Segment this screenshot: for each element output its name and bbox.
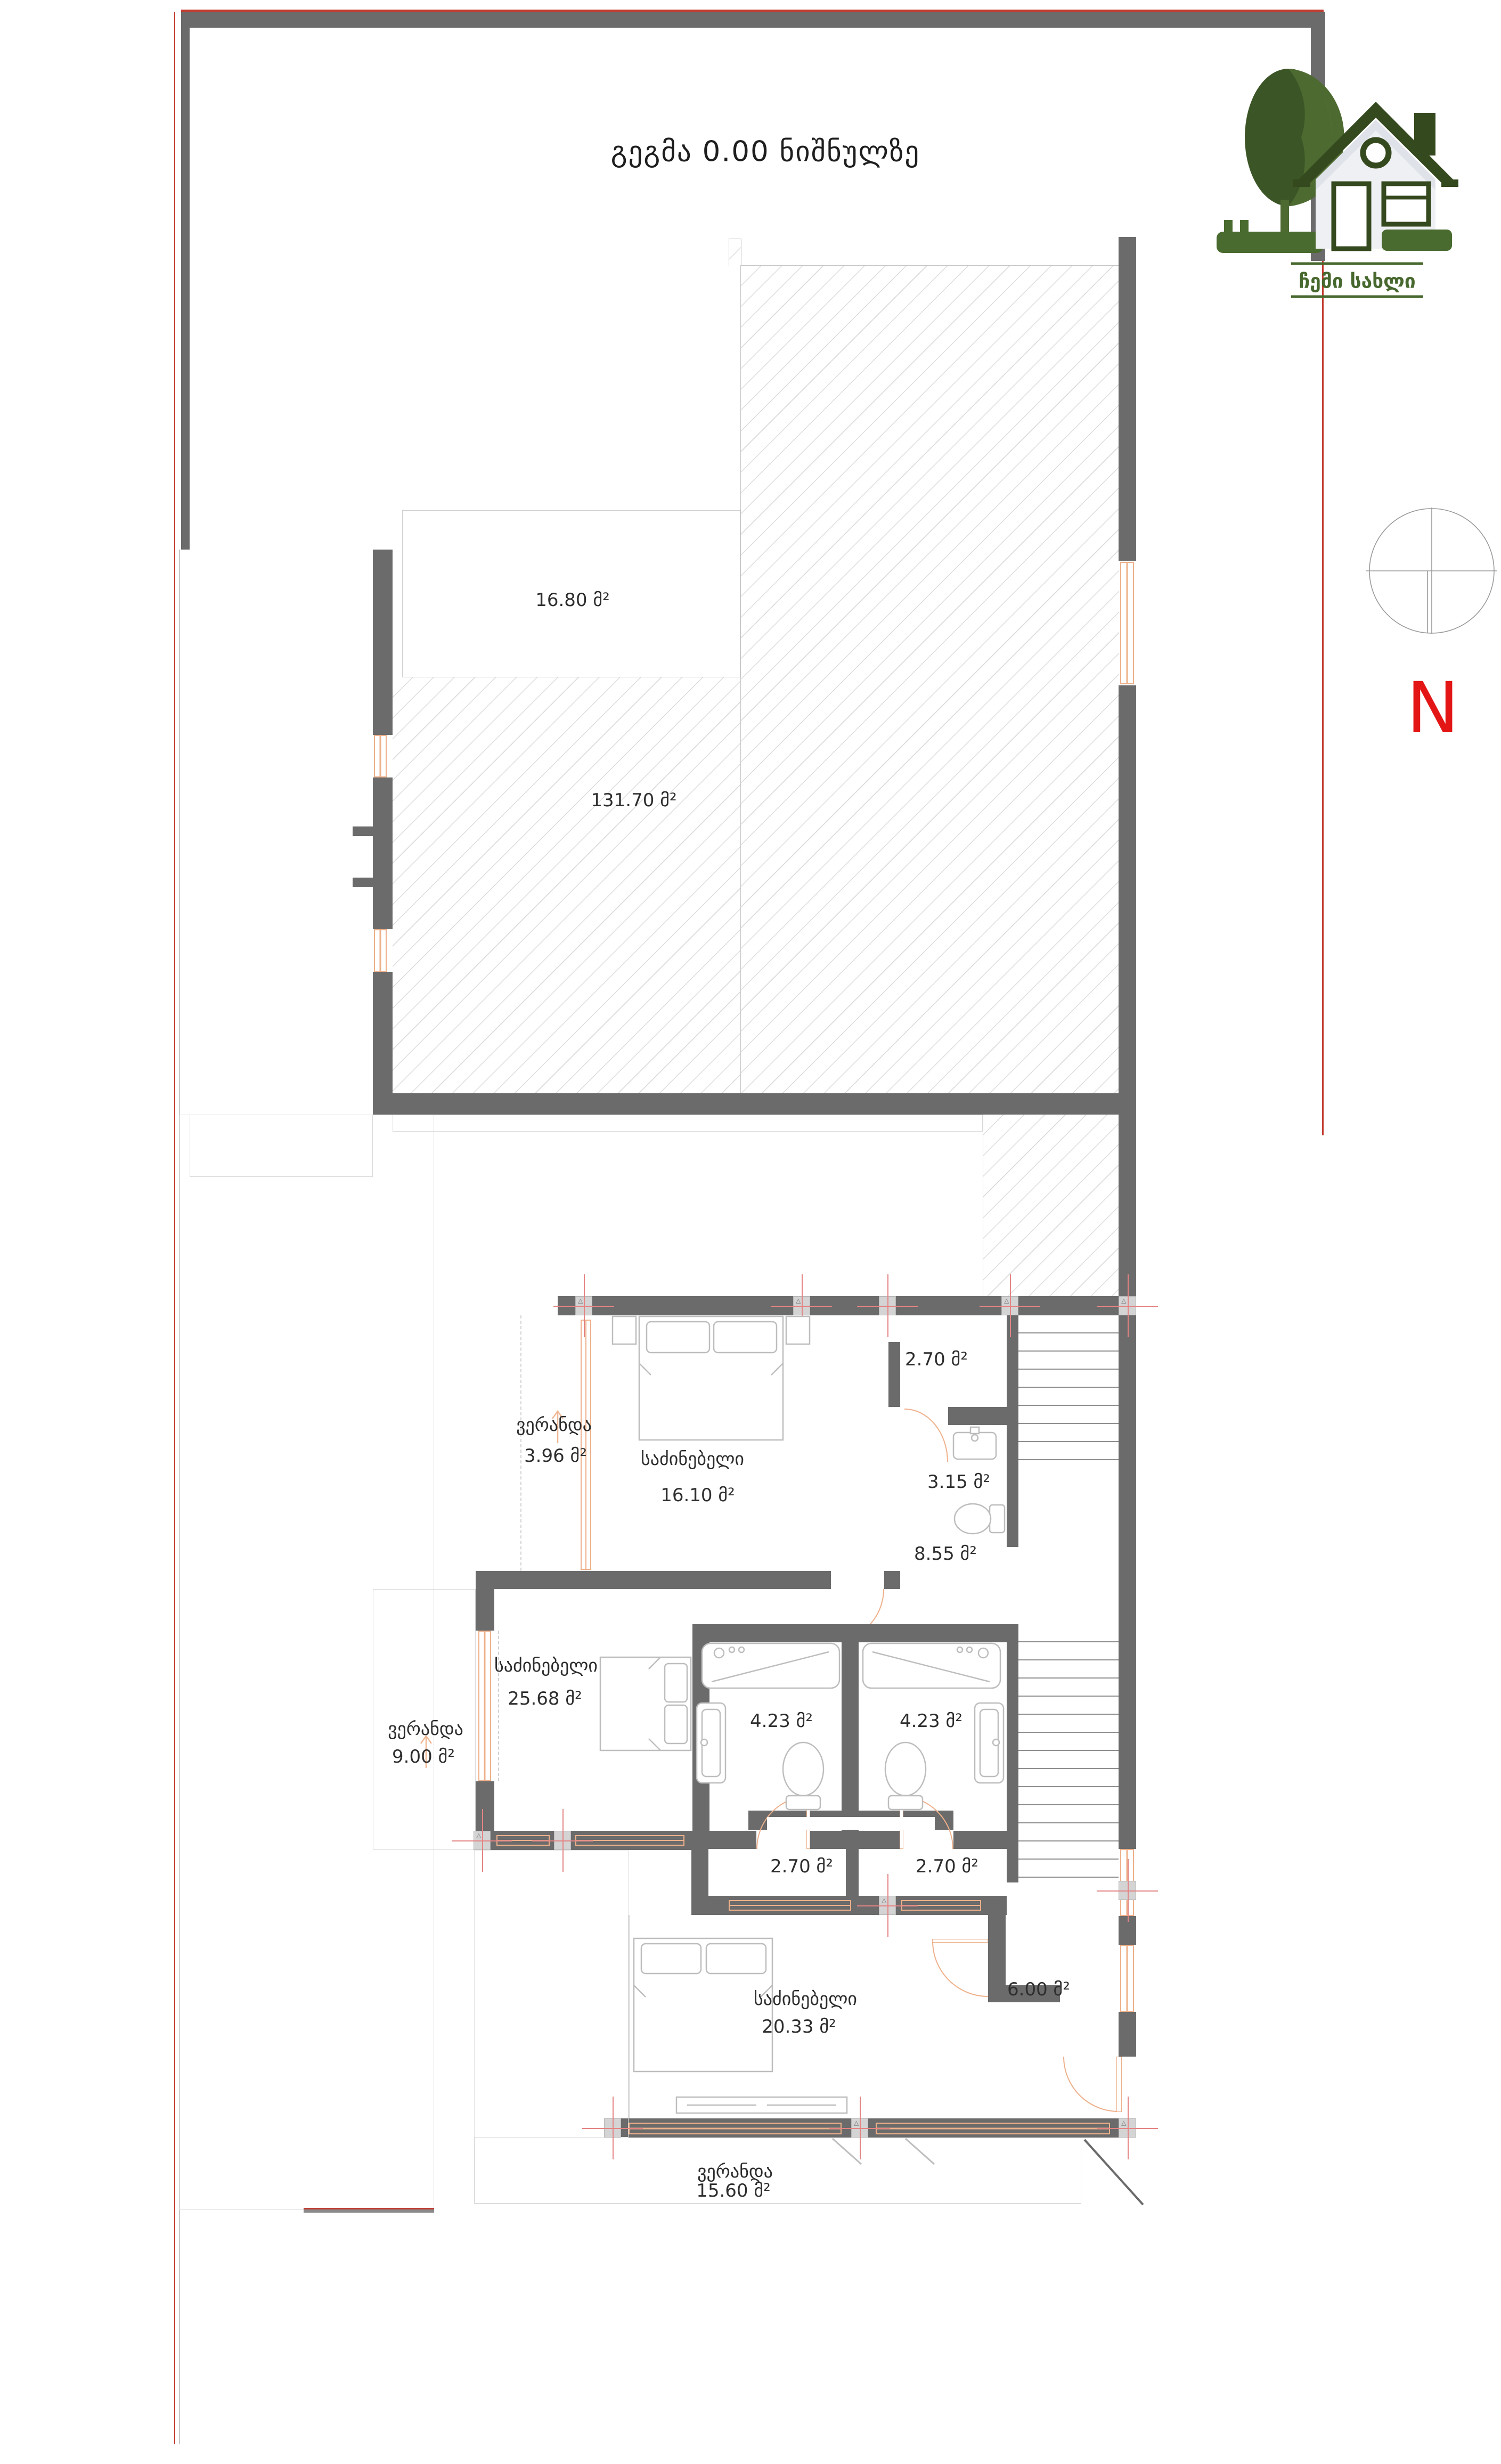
- north-label: N: [1407, 667, 1459, 749]
- hall-upper-area: 8.55 მ²: [914, 1543, 977, 1565]
- compass-icon: [1366, 507, 1497, 634]
- veranda-upper-name: ვერანდა: [516, 1414, 592, 1436]
- toilet-left: [783, 1742, 823, 1810]
- veranda-left-name: ვერანდა: [388, 1718, 463, 1740]
- veranda-bottom-name: ვერანდა: [697, 2161, 773, 2182]
- drawing-overlay: [0, 0, 1501, 2464]
- closet-right-area: 2.70 მ²: [916, 1856, 978, 1877]
- area-terrace: 131.70 მ²: [591, 790, 676, 811]
- sink-left: [697, 1703, 725, 1783]
- ramp-lines: [1084, 2140, 1143, 2205]
- floor-plan-canvas: ▵ ▵ ▵ ▵ ▵ ▵ ▵ ▵: [0, 0, 1501, 2464]
- logo-brand-text: ჩემი სახლი: [1299, 270, 1415, 293]
- bedroom-upper-area: 16.10 მ²: [660, 1485, 735, 1506]
- closet-left-area: 2.70 მ²: [770, 1856, 833, 1877]
- sink-right: [975, 1703, 1004, 1783]
- area-storage: 16.80 მ²: [535, 590, 610, 611]
- bedroom-middle-area: 25.68 მ²: [508, 1688, 582, 1709]
- veranda-upper-area: 3.96 მ²: [524, 1445, 587, 1467]
- bedroom-lower-area: 20.33 მ²: [762, 2016, 836, 2037]
- bed-upper: [613, 1316, 810, 1440]
- hall-entry-area: 6.00 მ²: [1007, 1979, 1070, 2000]
- bedroom-lower-name: საძინებელი: [754, 1988, 857, 2010]
- bath-upper-area: 3.15 მ²: [927, 1471, 990, 1493]
- bathtub-left: [702, 1643, 839, 1688]
- veranda-left-area: 9.00 მ²: [392, 1746, 455, 1767]
- toilet-right: [885, 1742, 926, 1810]
- step-ticks: [833, 2139, 934, 2164]
- bath-left-area: 4.23 მ²: [750, 1710, 813, 1732]
- bedroom-upper-name: საძინებელი: [641, 1448, 744, 1470]
- sink-upper-bath: [953, 1427, 996, 1459]
- bedroom-middle-name: საძინებელი: [494, 1655, 598, 1676]
- page-title: გეგმა 0.00 ნიშნულზე: [611, 136, 920, 168]
- bath-right-area: 4.23 მ²: [900, 1710, 962, 1732]
- wc-upper-area: 2.70 მ²: [905, 1349, 968, 1370]
- toilet-upper: [955, 1504, 1005, 1534]
- bathtub-right: [863, 1643, 1000, 1688]
- bed-middle: [600, 1657, 691, 1750]
- veranda-bottom-area: 15.60 მ²: [696, 2180, 771, 2201]
